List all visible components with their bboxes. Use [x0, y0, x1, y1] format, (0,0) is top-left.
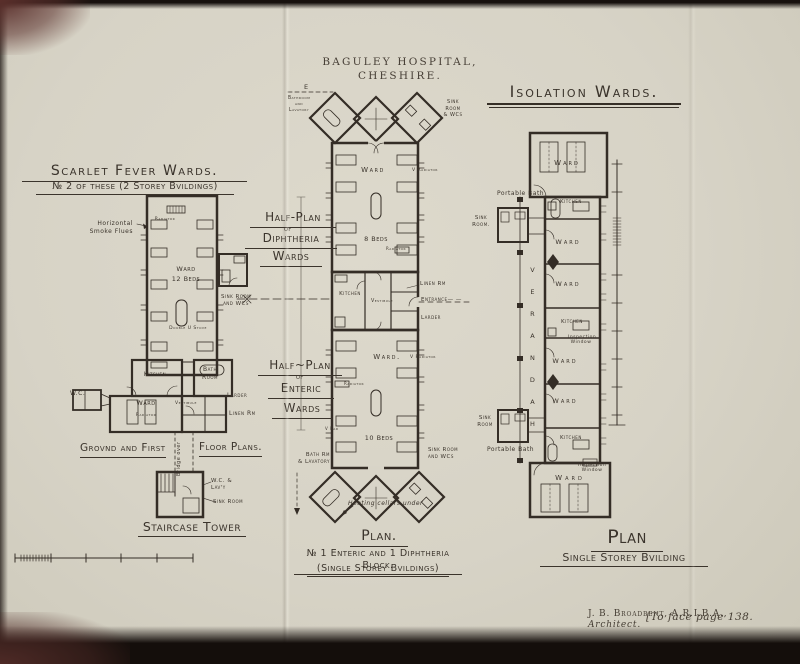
book-photo: BAGULEY HOSPITAL, CHESHIRE. — [0, 0, 800, 664]
label-iso-ward-2: Ward — [549, 280, 587, 288]
label-portable-bath-bottom: Portable Bath — [487, 446, 534, 454]
label-iso-ward-bottom: Ward — [543, 474, 597, 483]
isolation-title: Isolation Wards. — [487, 82, 681, 105]
label-iso-ward-3: Ward — [546, 357, 584, 365]
page-fold-crease-left — [282, 0, 290, 664]
caption-plan-isolation: Plan — [591, 525, 663, 552]
book-cover-corner-bottom-left — [0, 612, 130, 664]
label-iso-kitchen-3: Kitchen — [560, 435, 582, 442]
label-inspection-window-2: Inspection Window — [578, 463, 606, 473]
face-page-note: [To face page 138. — [646, 611, 753, 625]
label-iso-ward-1: Ward — [549, 238, 587, 246]
photo-edge-top — [0, 0, 800, 9]
label-iso-kitchen-2: Kitchen — [561, 319, 583, 326]
label-iso-ward-4: Ward — [546, 397, 584, 405]
page-fold-crease-right — [688, 0, 696, 664]
label-iso-kitchen-1: Kitchen — [560, 199, 582, 206]
photo-edge-left — [0, 0, 8, 664]
caption-single-storey-building: Single Storey Bvilding — [540, 551, 708, 567]
isolation-section: Isolation Wards. Ward Portable Bath Sink… — [0, 0, 800, 664]
label-verandah: VERANDAH — [528, 266, 536, 461]
plate-page: BAGULEY HOSPITAL, CHESHIRE. — [0, 0, 800, 664]
label-inspection-window-1: Inspection Window — [568, 335, 594, 345]
label-sink-room-top: Sink Room. — [468, 215, 494, 229]
label-iso-ward-top: Ward — [548, 159, 586, 168]
label-sink-room-bottom: Sink Room — [472, 415, 498, 429]
label-portable-bath-top: Portable Bath — [497, 190, 544, 198]
book-cover-corner-top-left — [0, 0, 90, 55]
